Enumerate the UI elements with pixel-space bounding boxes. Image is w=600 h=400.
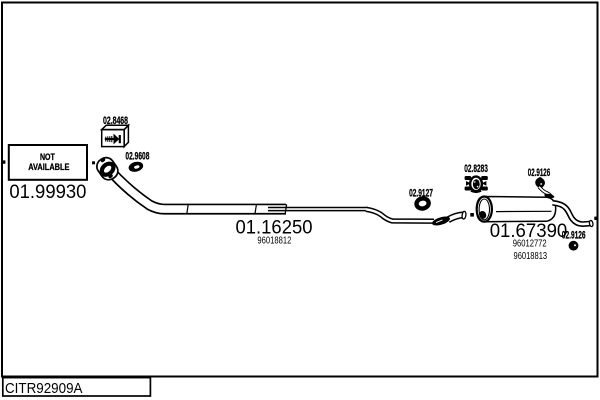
svg-text:NOT: NOT bbox=[40, 152, 55, 162]
svg-text:02.9608: 02.9608 bbox=[125, 151, 149, 163]
svg-text:01.99930: 01.99930 bbox=[9, 181, 86, 203]
svg-text:96012772: 96012772 bbox=[513, 238, 547, 249]
svg-text:02.9126: 02.9126 bbox=[562, 229, 586, 241]
svg-text:96018812: 96018812 bbox=[257, 235, 291, 246]
svg-text:96018813: 96018813 bbox=[514, 251, 548, 262]
svg-text:CITR92909A: CITR92909A bbox=[5, 380, 83, 397]
svg-text:02.8283: 02.8283 bbox=[464, 163, 488, 175]
svg-text:02.9126: 02.9126 bbox=[528, 167, 550, 179]
svg-text:AVAILABLE: AVAILABLE bbox=[28, 162, 69, 172]
